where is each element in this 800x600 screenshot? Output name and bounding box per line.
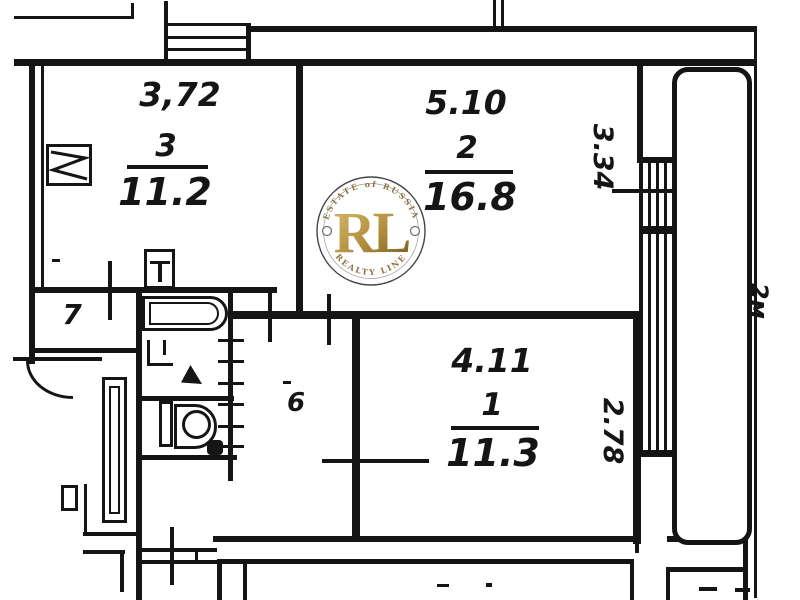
wall-bottom-lower-1 (222, 559, 634, 564)
stair-window-right (246, 23, 251, 62)
entry-step (195, 548, 198, 562)
hatch-tick (218, 403, 244, 406)
shaft-cap-top (639, 157, 676, 163)
hatch-tick (218, 360, 244, 363)
room3-area: 11.2 (105, 173, 225, 211)
zigzag-icon (49, 147, 89, 183)
scan-dot (52, 259, 60, 262)
door-tick-room3 (108, 261, 112, 320)
room1-area: 11.3 (431, 434, 555, 472)
room1-side-dim: 2.78 (598, 391, 626, 471)
stair-window-line2 (166, 36, 248, 39)
duct-inner (109, 386, 120, 514)
shaft-cap-bottom (639, 450, 676, 457)
room1-top-dim: 4.11 (430, 344, 554, 377)
scan-dash (437, 584, 449, 587)
below-wall-stub-1 (217, 559, 222, 600)
shaft-bar (656, 160, 659, 456)
door-swing-arc (26, 361, 73, 399)
hatch-tick (218, 382, 244, 385)
stair-window-line1 (166, 23, 250, 26)
entry-door-tick (170, 527, 174, 585)
wall-top-outer-lower (14, 59, 756, 66)
room2-side-dim: 3.34 (588, 117, 616, 197)
wall-storage-bottom (34, 348, 139, 353)
stair-window-line3 (166, 48, 248, 51)
bath-door-jamb (163, 340, 166, 355)
vent-zigzag-box (46, 144, 92, 186)
room3-top-dim: 3,72 (118, 78, 242, 111)
stair-window-left (164, 1, 168, 61)
balcony-outline (672, 67, 752, 545)
wall-stub-668 (666, 567, 670, 600)
corner-mark (207, 440, 223, 455)
wall-hall-top-long (229, 311, 642, 319)
floor-plan: 3,72 3 11.2 5.10 2 16.8 3.34 4.11 1 11.3… (0, 0, 800, 600)
sink-tap-v (158, 263, 162, 282)
wall-bottom-lower-2 (667, 567, 747, 572)
wall-wc-top (139, 396, 234, 401)
room3-fraction-line (127, 165, 208, 169)
room3-number: 3 (106, 131, 226, 162)
shaft-bar (664, 160, 667, 456)
room2-top-dim: 5.10 (404, 86, 528, 119)
shaft-bar (648, 160, 651, 456)
lobby-stub-v (84, 484, 87, 534)
scan-dash (699, 587, 717, 591)
stair-stub-line (14, 16, 134, 19)
toilet-seat (182, 410, 211, 439)
watermark-stamp: RL ESTATE of RUSSIA REALTY LINE (296, 156, 446, 306)
wall-bath-left (136, 287, 142, 600)
top-stub-b (501, 0, 504, 28)
entry-line-2 (141, 560, 222, 564)
hatch-tick (218, 425, 244, 428)
wall-room2-right (637, 62, 643, 163)
watermark-dot-right (411, 227, 420, 236)
room1-number: 1 (432, 390, 552, 421)
wall-stub-637 (635, 536, 639, 553)
scan-dash (735, 588, 750, 592)
top-stub-a (493, 0, 496, 28)
hallway-number: 6 (276, 390, 316, 416)
wall-hall-room1 (352, 316, 360, 542)
bathtub-inner (149, 302, 219, 325)
balcony-width-dim: 2м (743, 266, 771, 336)
wall-wc-bottom (139, 455, 237, 460)
wall-stub-632 (630, 559, 634, 600)
lobby-line-2 (83, 550, 125, 554)
bath-door-h (147, 363, 173, 366)
scan-dot (283, 381, 291, 384)
shaft-bar (639, 160, 643, 456)
hatch-tick (218, 339, 244, 342)
entry-line-1 (141, 548, 217, 552)
wall-bottom-upper-1 (213, 536, 639, 542)
toilet-tank (159, 401, 173, 447)
door-swing-mark (181, 365, 202, 384)
wall-left-outer (29, 59, 35, 364)
room1-fraction-line (451, 426, 539, 430)
door-tick-room1 (322, 459, 429, 463)
below-wall-stub-2 (243, 562, 247, 600)
scan-dot (486, 583, 492, 587)
shaft-cap-mid (639, 226, 676, 234)
stair-stub-tick (131, 3, 134, 18)
storage-number: 7 (52, 301, 92, 329)
lobby-niche (61, 485, 78, 511)
lobby-corner-v (120, 550, 124, 592)
wall-left-inner (41, 62, 44, 291)
lobby-line-1 (83, 532, 138, 536)
door-tick-hall-a (268, 287, 272, 342)
watermark-dot-left (323, 227, 332, 236)
